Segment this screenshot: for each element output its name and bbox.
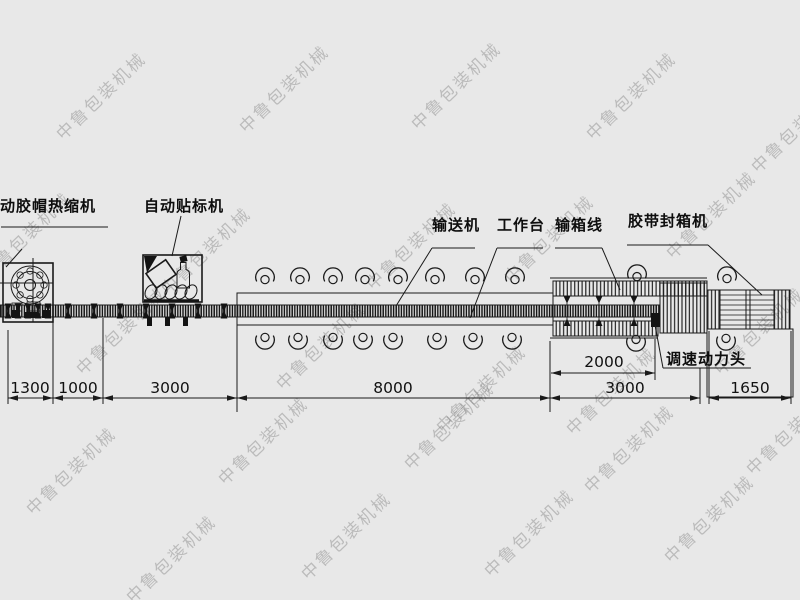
dim-2000: 2000 (584, 353, 623, 371)
label-power-head: 调速动力头 (666, 350, 746, 368)
sealer-belt-lines (720, 295, 774, 325)
operator-icon (389, 268, 408, 284)
bottle-glyph-icon (177, 255, 190, 288)
operator-icon (384, 333, 403, 349)
operator-icon (464, 333, 483, 349)
operator-icon (324, 268, 343, 284)
dim-1650: 1650 (730, 379, 769, 397)
label-worktable: 工作台 (497, 216, 545, 234)
dim-8000: 8000 (373, 379, 412, 397)
operator-icon (717, 334, 736, 350)
dim-3000-right: 3000 (605, 379, 644, 397)
label-heat-shrink: 动胶帽热缩机 (0, 197, 96, 215)
operator-icon (256, 333, 275, 349)
operator-icon (506, 268, 525, 284)
infeed-roller-section (660, 283, 707, 333)
operator-icon (503, 333, 522, 349)
operator-icon (356, 268, 375, 284)
operator-icon (354, 333, 373, 349)
operator-icon (426, 268, 445, 284)
dim-3000-left: 3000 (150, 379, 189, 397)
operator-icon (466, 268, 485, 284)
screw-feeder-icon (143, 283, 200, 301)
label-conveyor: 输送机 (432, 216, 480, 234)
operator-icon (291, 268, 310, 284)
dim-1300: 1300 (10, 379, 49, 397)
main-conveyor-belt (0, 305, 660, 317)
label-labeler: 自动贴标机 (144, 197, 224, 215)
power-head-block (651, 313, 660, 327)
operator-icon (428, 333, 447, 349)
label-box-line: 输箱线 (555, 216, 603, 234)
operator-icon (256, 268, 275, 284)
dim-1000: 1000 (58, 379, 97, 397)
diagram-canvas: 中鲁包装机械中鲁包装机械中鲁包装机械中鲁包装机械中鲁包装机械中鲁包装机械中鲁包装… (0, 0, 800, 600)
operator-icon (324, 333, 343, 349)
operator-icon (289, 333, 308, 349)
packaging-line-diagram: 1300 1000 3000 8000 2000 3000 1650 动胶帽热缩… (0, 0, 800, 600)
label-tape-sealer: 胶带封箱机 (628, 212, 708, 230)
